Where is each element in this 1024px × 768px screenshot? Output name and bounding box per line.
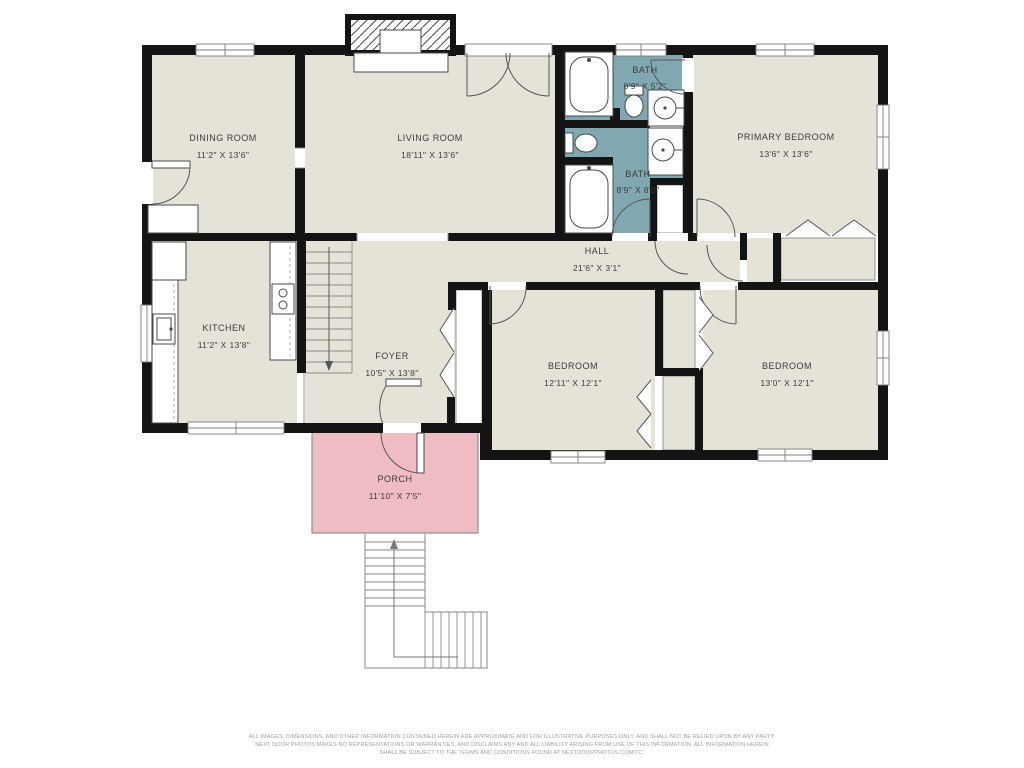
kitchen-left-window bbox=[141, 305, 153, 362]
dining-room-label: DINING ROOM bbox=[189, 133, 257, 143]
bath-main-dims: 8'9" X 8'0" bbox=[617, 185, 660, 195]
wall-living-bottom bbox=[297, 233, 357, 241]
foyer-label: FOYER bbox=[375, 351, 409, 361]
wall-linen-top bbox=[657, 178, 683, 185]
primary-top-window bbox=[756, 44, 814, 56]
wall-hall-stub1 bbox=[648, 233, 657, 241]
primary-vestibule-floor bbox=[747, 238, 773, 282]
bedroom-right-dims: 13'0" X 12'1" bbox=[760, 378, 813, 388]
foyer-closet bbox=[456, 290, 482, 425]
sink-faucet bbox=[169, 327, 172, 330]
wall-hall-top bbox=[448, 233, 612, 241]
porch-label: PORCH bbox=[377, 474, 412, 484]
opening-linen-door bbox=[657, 233, 688, 241]
wall-hall-end bbox=[740, 233, 747, 260]
opening-bath-top-door bbox=[682, 58, 694, 92]
bathtub-main bbox=[565, 165, 613, 233]
bedroom-right-closet bbox=[663, 290, 695, 373]
wall-closet-mid bbox=[655, 368, 703, 376]
bedroom-right-label: BEDROOM bbox=[762, 361, 812, 371]
porch-dims: 11'10" X 7'5" bbox=[369, 491, 422, 501]
wall-bottom-right bbox=[480, 450, 888, 460]
wall-toilet-tub bbox=[555, 157, 613, 165]
bedroom-right-bottom-window bbox=[758, 449, 812, 461]
wall-stair-left bbox=[297, 241, 306, 373]
wall-foyer-closet-stub-top bbox=[448, 282, 456, 310]
primary-right-window bbox=[877, 105, 889, 169]
bath-main-label: BATH bbox=[625, 169, 650, 179]
living-room-dims: 18'11" X 13'6" bbox=[401, 150, 459, 160]
kitchen-label: KITCHEN bbox=[202, 323, 245, 333]
bedroom-left-dims: 12'11" X 12'1" bbox=[544, 378, 602, 388]
tub-faucet bbox=[587, 166, 591, 170]
disclaimer-line-2: NEXT DOOR PHOTOS MAKES NO REPRESENTATION… bbox=[255, 742, 769, 748]
bedroom-left-bottom-window bbox=[551, 451, 605, 463]
fireplace bbox=[348, 17, 453, 72]
living-room-label: LIVING ROOM bbox=[397, 133, 463, 143]
bath-top-label: BATH bbox=[632, 65, 657, 75]
opening-dining-living bbox=[295, 148, 305, 168]
opening-front-door bbox=[383, 423, 421, 433]
wall-baths-middle bbox=[555, 120, 650, 128]
opening-dining-side-door bbox=[141, 162, 153, 204]
primary-closet bbox=[781, 238, 875, 280]
wall-bedroom-divider-bottom bbox=[695, 375, 703, 452]
wall-hall-stub2 bbox=[688, 233, 697, 241]
wall-bedroom-divider-top bbox=[655, 290, 663, 375]
wall-dining-living bbox=[295, 55, 305, 233]
primary-bedroom-label: PRIMARY BEDROOM bbox=[737, 132, 834, 142]
side-door-leaf bbox=[152, 161, 190, 168]
front-door-leaf bbox=[386, 379, 421, 386]
toilet-top-bowl bbox=[625, 95, 643, 117]
primary-bedroom-floor bbox=[693, 55, 878, 233]
dining-window bbox=[196, 44, 254, 56]
opening-bath-main-door bbox=[612, 233, 648, 241]
foyer-dims: 10'5" X 13'8" bbox=[365, 368, 418, 378]
opening-hall-end bbox=[740, 260, 747, 282]
french-door-opening bbox=[465, 44, 552, 56]
floor-plan-page: DINING ROOM 11'2" X 13'6" LIVING ROOM 18… bbox=[0, 0, 1024, 768]
bath-window bbox=[616, 44, 666, 56]
toilet-main-bowl bbox=[575, 134, 597, 152]
wall-hall-bottom-c bbox=[738, 282, 878, 290]
kitchen-dims: 11'2" X 13'8" bbox=[198, 340, 251, 350]
chimney-flue bbox=[380, 30, 421, 53]
disclaimer-line-3: SHALL BE SUBJECT TO THE TERMS AND CONDIT… bbox=[380, 750, 645, 756]
opening-primary-door bbox=[697, 233, 740, 241]
wall-hall-bottom-b bbox=[526, 282, 700, 290]
dining-room-dims: 11'2" X 13'6" bbox=[197, 150, 250, 160]
hall-label: HALL bbox=[585, 246, 610, 256]
bath-top-dims: 8'9" X 5'2" bbox=[624, 81, 667, 91]
wall-vestibule bbox=[773, 233, 781, 282]
bedroom-left-label: BEDROOM bbox=[548, 361, 598, 371]
primary-bedroom-dims: 13'6" X 13'6" bbox=[759, 149, 812, 159]
vanity-main bbox=[648, 128, 683, 175]
linen-closet bbox=[657, 185, 683, 233]
tub-faucet bbox=[587, 58, 591, 62]
kitchen-bottom-window bbox=[188, 422, 284, 434]
wall-foyer-closet-stub-bottom bbox=[447, 397, 455, 428]
hearth bbox=[354, 53, 448, 72]
opening-bedroom-left-door bbox=[488, 282, 526, 290]
wall-bath-left bbox=[555, 55, 565, 241]
dining-buffet bbox=[148, 205, 198, 233]
bedroom-left-closet bbox=[663, 376, 695, 450]
toilet-main-tank bbox=[565, 133, 573, 153]
wall-dining-kitchen bbox=[142, 233, 305, 241]
hall-dims: 21'6" X 3'1" bbox=[573, 263, 621, 273]
opening-bedroom-right-door bbox=[700, 282, 738, 290]
bedroom-right-window bbox=[877, 331, 889, 385]
porch-door-leaf bbox=[417, 433, 424, 473]
opening-living-foyer bbox=[357, 233, 448, 241]
disclaimer-line-1: ALL IMAGES, DIMENSIONS, AND OTHER INFORM… bbox=[249, 734, 776, 740]
floor-plan-drawing: DINING ROOM 11'2" X 13'6" LIVING ROOM 18… bbox=[0, 0, 1024, 768]
refrigerator bbox=[152, 242, 186, 280]
